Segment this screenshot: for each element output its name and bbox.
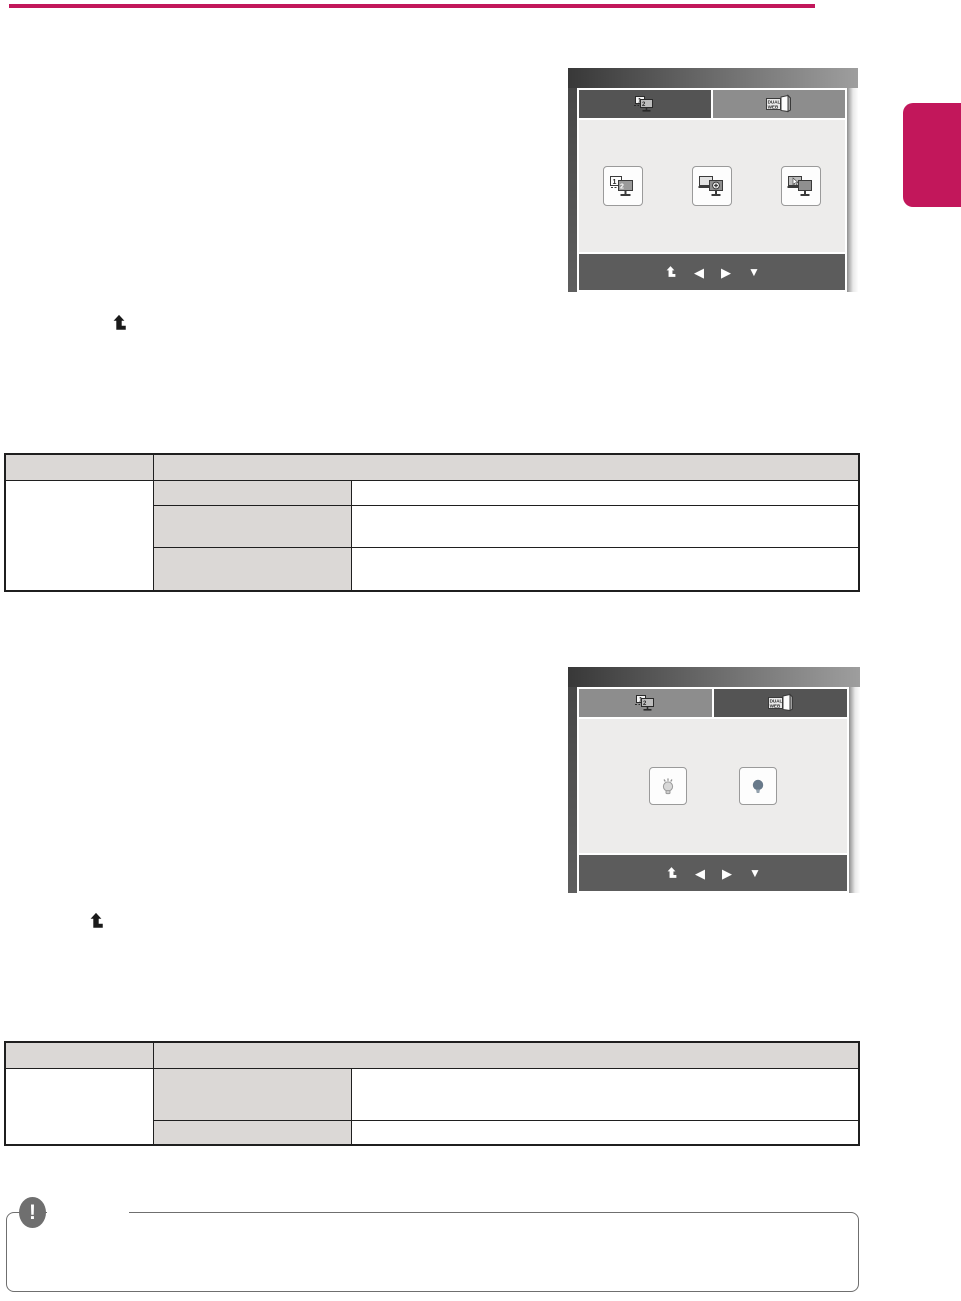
exit-up-arrow-icon <box>87 912 105 930</box>
table-row <box>5 480 859 505</box>
bulb-off-icon <box>747 775 769 797</box>
note-box: ! <box>6 1212 859 1292</box>
note-title-gap <box>47 1209 129 1217</box>
osd-bezel-left <box>568 687 577 893</box>
submenu-cell <box>153 1068 351 1120</box>
table-header-row <box>5 1042 859 1068</box>
osd-tab-bar: 1 2 DUAL WEB <box>579 90 845 120</box>
osd-screenshot-1: 1 2 DUAL WEB <box>568 68 858 292</box>
dual-web-icon: DUAL WEB <box>767 693 795 713</box>
osd-screen: 1 2 DUAL WEB <box>577 88 847 292</box>
table-header-row <box>5 454 859 480</box>
exclamation-icon: ! <box>19 1197 46 1228</box>
tab-dual-display: 1 2 <box>579 90 713 118</box>
svg-text:WEB: WEB <box>768 104 779 109</box>
settings-table-1 <box>4 453 860 592</box>
submenu-cell <box>153 505 351 547</box>
description-cell <box>351 505 859 547</box>
submenu-cell <box>153 547 351 591</box>
dual-web-icon: DUAL WEB <box>765 94 793 114</box>
arrow-left-icon: ◀ <box>695 867 705 880</box>
monitor-settings-icon <box>698 174 726 198</box>
arrow-right-icon: ▶ <box>721 266 731 279</box>
osd-nav-bar: ◀ ▶ ▼ <box>579 853 847 891</box>
header-cell-description <box>153 1042 859 1068</box>
option-bulb-off-button <box>739 767 777 805</box>
description-cell <box>351 1068 859 1120</box>
menu-cell <box>5 480 153 591</box>
svg-text:2: 2 <box>620 184 624 191</box>
submenu-cell <box>153 1120 351 1145</box>
option-bulb-on-button <box>649 767 687 805</box>
svg-text:1: 1 <box>613 179 617 186</box>
description-cell <box>351 547 859 591</box>
arrow-left-icon: ◀ <box>694 266 704 279</box>
submenu-cell <box>153 480 351 505</box>
osd-bezel-top <box>568 667 860 687</box>
osd-content <box>579 719 847 853</box>
dual-monitor-icon: 1 2 <box>631 693 661 713</box>
header-cell-menu <box>5 454 153 480</box>
description-cell <box>351 1120 859 1145</box>
table-row <box>5 1068 859 1120</box>
osd-screen: 1 2 DUAL WEB <box>577 687 849 893</box>
header-cell-description <box>153 454 859 480</box>
dual-monitor-icon: 1 2 <box>630 94 660 114</box>
arrow-down-icon: ▼ <box>748 266 760 278</box>
header-cell-menu <box>5 1042 153 1068</box>
tab-dual-web: DUAL WEB <box>713 90 845 118</box>
osd-content: 1 2 <box>579 120 845 252</box>
arrow-right-icon: ▶ <box>722 867 732 880</box>
option-dual-display-button: 1 2 <box>603 166 643 206</box>
settings-table-2 <box>4 1041 860 1146</box>
tab-dual-web: DUAL WEB <box>714 689 847 717</box>
chapter-side-tab <box>903 103 961 207</box>
exit-up-arrow-icon <box>110 314 128 332</box>
exit-up-arrow-icon <box>665 865 678 881</box>
osd-bezel-left <box>568 88 577 292</box>
osd-bezel-right <box>849 687 860 893</box>
description-cell <box>351 480 859 505</box>
menu-cell <box>5 1068 153 1145</box>
osd-bezel-right <box>847 88 858 292</box>
osd-nav-bar: ◀ ▶ ▼ <box>579 252 845 290</box>
dual-monitor-12-icon: 1 2 <box>609 174 637 198</box>
monitor-pointer-icon <box>787 174 815 198</box>
osd-screenshot-2: 1 2 DUAL WEB <box>568 667 860 893</box>
svg-text:WEB: WEB <box>769 703 780 708</box>
option-display-pointer-button <box>781 166 821 206</box>
osd-tab-bar: 1 2 DUAL WEB <box>579 689 847 719</box>
top-accent-rule <box>9 4 815 8</box>
osd-bezel-top <box>568 68 858 88</box>
option-display-settings-button <box>692 166 732 206</box>
manual-page: 1 2 DUAL WEB <box>0 0 961 1301</box>
arrow-down-icon: ▼ <box>749 867 761 879</box>
tab-dual-display: 1 2 <box>579 689 714 717</box>
bulb-on-icon <box>657 775 679 797</box>
exit-up-arrow-icon <box>664 264 677 280</box>
